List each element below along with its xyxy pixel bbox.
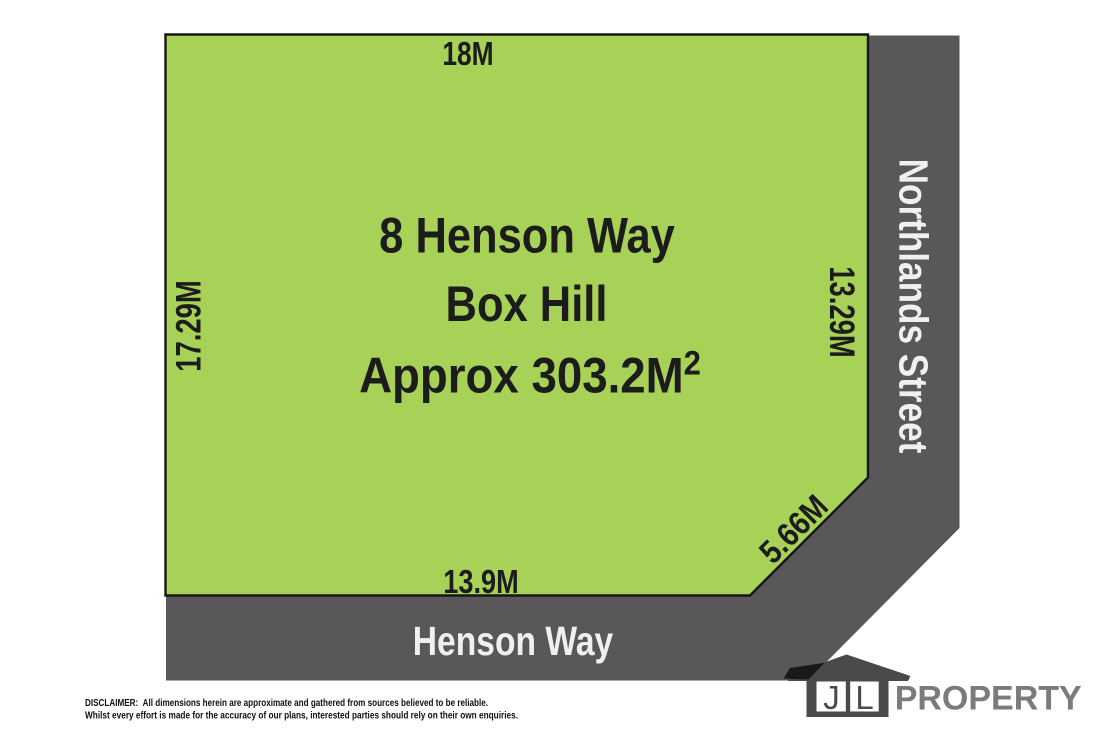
svg-text:17.29M: 17.29M xyxy=(169,280,208,372)
svg-text:13.9M: 13.9M xyxy=(443,565,518,601)
svg-text:Northlands Street: Northlands Street xyxy=(890,159,936,454)
svg-text:L: L xyxy=(855,679,873,716)
svg-text:Approx 303.2M2: Approx 303.2M2 xyxy=(359,344,701,404)
svg-text:8 Henson Way: 8 Henson Way xyxy=(379,208,675,263)
svg-text:Whilst every effort is made fo: Whilst every effort is made for the accu… xyxy=(85,710,518,721)
svg-text:J: J xyxy=(823,679,840,716)
svg-text:PROPERTY: PROPERTY xyxy=(895,679,1082,717)
svg-text:Henson Way: Henson Way xyxy=(413,618,614,664)
svg-text:DISCLAIMER: All dimensions he: DISCLAIMER: All dimensions herein are ap… xyxy=(85,698,488,709)
svg-text:13.29M: 13.29M xyxy=(822,266,861,358)
svg-text:18M: 18M xyxy=(442,36,493,72)
svg-text:Box Hill: Box Hill xyxy=(446,276,608,331)
